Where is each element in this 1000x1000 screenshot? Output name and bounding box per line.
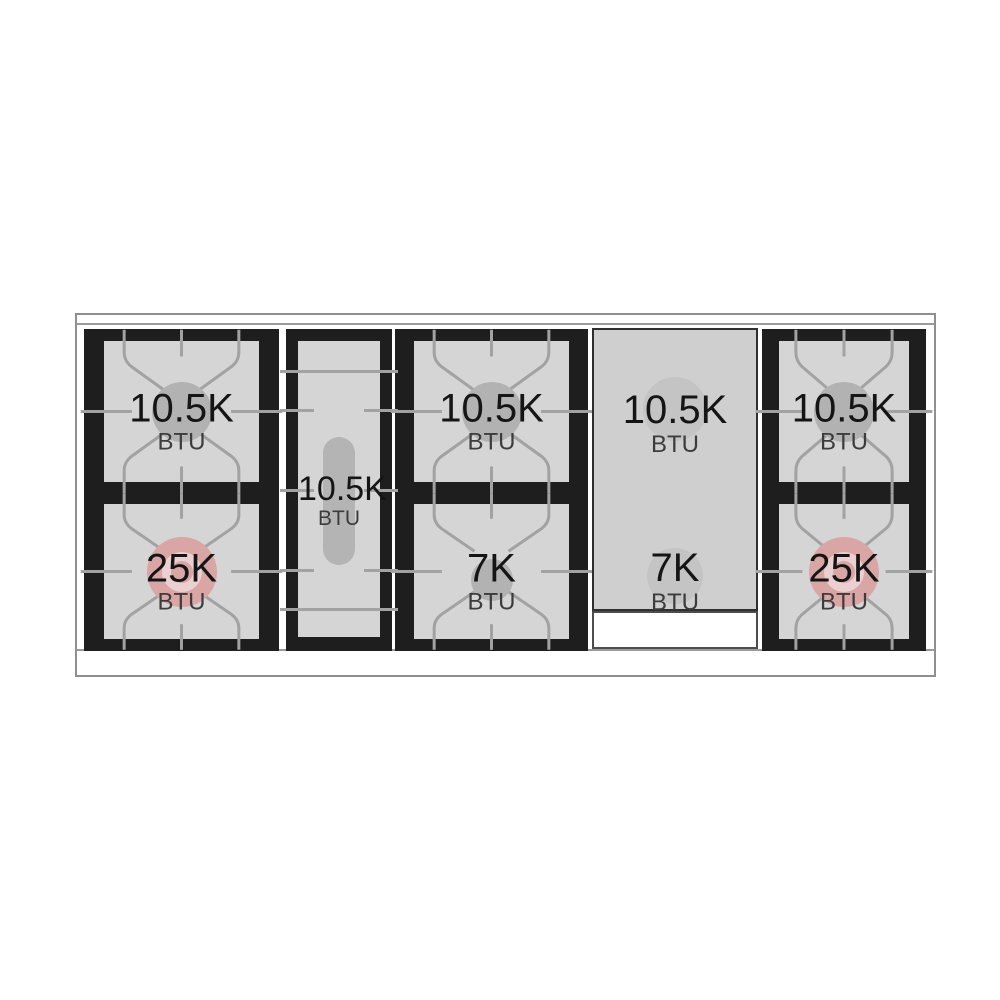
- burner-btu-unit: BTU: [594, 432, 756, 457]
- griddle-panel: 10.5K BTU 7K BTU: [592, 328, 758, 611]
- burner-btu-unit: BTU: [594, 590, 756, 615]
- burner-btu-value: 10.5K: [779, 388, 909, 429]
- griddle-front-strip: [592, 611, 758, 649]
- module-left-burner-pair: 10.5K BTU 25K BTU: [84, 329, 279, 651]
- burner-btu-unit: BTU: [104, 590, 259, 615]
- burner-cell: 25K BTU: [104, 504, 259, 639]
- burner-btu-unit: BTU: [104, 430, 259, 455]
- grate-tick: [280, 569, 314, 572]
- module-middle-burner-pair: 10.5K BTU 7K BTU: [395, 329, 588, 651]
- burner-btu-unit: BTU: [779, 430, 909, 455]
- burner-btu-value: 7K: [414, 548, 569, 589]
- burner-btu-value: 25K: [104, 548, 259, 589]
- grate-bar: [280, 370, 398, 373]
- burner-btu-unit: BTU: [779, 590, 909, 615]
- burner-btu-unit: BTU: [298, 508, 380, 530]
- burner-btu-unit: BTU: [414, 590, 569, 615]
- cooktop-diagram: 10.5K BTU 25K BTU: [0, 0, 1000, 1000]
- burner-btu-value: 10.5K: [594, 390, 756, 431]
- back-rail-line: [77, 323, 934, 325]
- burner-cell: 25K BTU: [779, 504, 909, 639]
- burner-cell: 10.5K BTU: [414, 341, 569, 482]
- burner-cell: 7K BTU: [414, 504, 569, 639]
- grate-tick: [364, 409, 398, 412]
- grate-tick: [364, 569, 398, 572]
- burner-btu-unit: BTU: [414, 430, 569, 455]
- burner-btu-value: 10.5K: [414, 388, 569, 429]
- grate-bar: [280, 608, 398, 611]
- grate-tick: [280, 409, 314, 412]
- burner-cell: 10.5K BTU: [104, 341, 259, 482]
- burner-btu-value: 25K: [779, 548, 909, 589]
- burner-cell: 10.5K BTU: [779, 341, 909, 482]
- burner-btu-value: 10.5K: [298, 472, 380, 507]
- range-top-frame: 10.5K BTU 25K BTU: [75, 313, 936, 677]
- module-center-oval-burner: 10.5K BTU: [286, 329, 392, 651]
- burner-btu-value: 7K: [594, 548, 756, 589]
- module-right-burner-pair: 10.5K BTU 25K BTU: [762, 329, 926, 651]
- burner-cell: 10.5K BTU: [298, 341, 380, 637]
- burner-btu-value: 10.5K: [104, 388, 259, 429]
